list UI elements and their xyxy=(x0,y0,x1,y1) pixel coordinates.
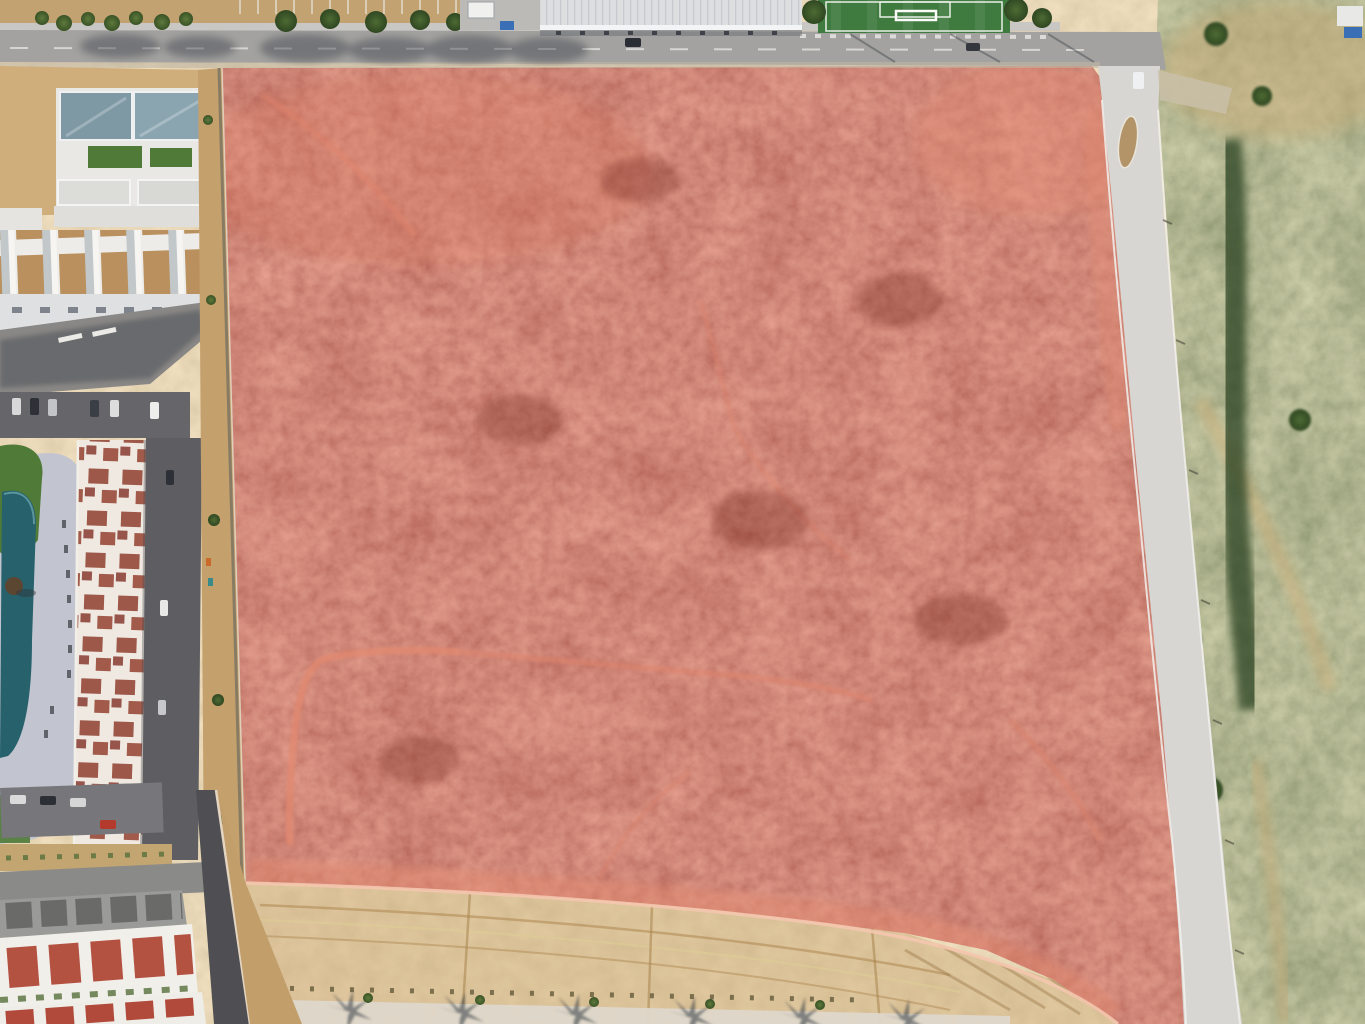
car xyxy=(90,400,99,417)
field-tree xyxy=(1032,8,1052,28)
parcel-red-tint xyxy=(222,66,1188,1024)
warehouse xyxy=(540,0,802,36)
hillside-tree xyxy=(1252,86,1272,106)
strip-tree xyxy=(208,514,220,526)
apt-terrace-row xyxy=(0,230,212,294)
car xyxy=(10,795,26,804)
car-red xyxy=(100,820,116,829)
club-turf xyxy=(88,146,142,168)
car-dark xyxy=(966,43,980,51)
strip-object-orange xyxy=(206,558,211,566)
club-roof xyxy=(58,180,130,205)
club-turf xyxy=(150,148,192,167)
lower-parking xyxy=(0,782,164,838)
car xyxy=(70,798,86,807)
apt-roof xyxy=(0,208,42,230)
aerial-photo xyxy=(0,0,1365,1024)
highlighted-parcel-overlay xyxy=(190,55,1200,1024)
strip-tree xyxy=(206,295,216,305)
hillside-tree xyxy=(1204,22,1228,46)
hillside-tree xyxy=(1289,409,1311,431)
strip-tree xyxy=(203,115,213,125)
car xyxy=(150,402,159,419)
car xyxy=(166,470,174,485)
car xyxy=(12,398,21,415)
hilltop-shed-roof xyxy=(1337,6,1363,26)
field-tree xyxy=(802,0,826,24)
hilltop-blue-container xyxy=(1344,27,1362,38)
car xyxy=(40,796,56,805)
strip-tree xyxy=(212,694,224,706)
apt-roof xyxy=(54,206,206,227)
warehouse-shadow xyxy=(540,30,802,36)
car-dark xyxy=(625,38,641,47)
sports-club xyxy=(56,88,218,208)
car xyxy=(110,400,119,417)
container-white xyxy=(468,2,494,18)
car xyxy=(30,398,39,415)
container-blue xyxy=(500,21,514,30)
warehouse-eave xyxy=(540,25,802,30)
strip-object-teal xyxy=(208,578,213,586)
aerial-photo-stage xyxy=(0,0,1365,1024)
car-white xyxy=(1133,72,1144,89)
car xyxy=(48,399,57,416)
car xyxy=(158,700,166,715)
upper-parking xyxy=(0,392,190,438)
car xyxy=(160,600,168,616)
palapa-shadow xyxy=(16,589,36,597)
